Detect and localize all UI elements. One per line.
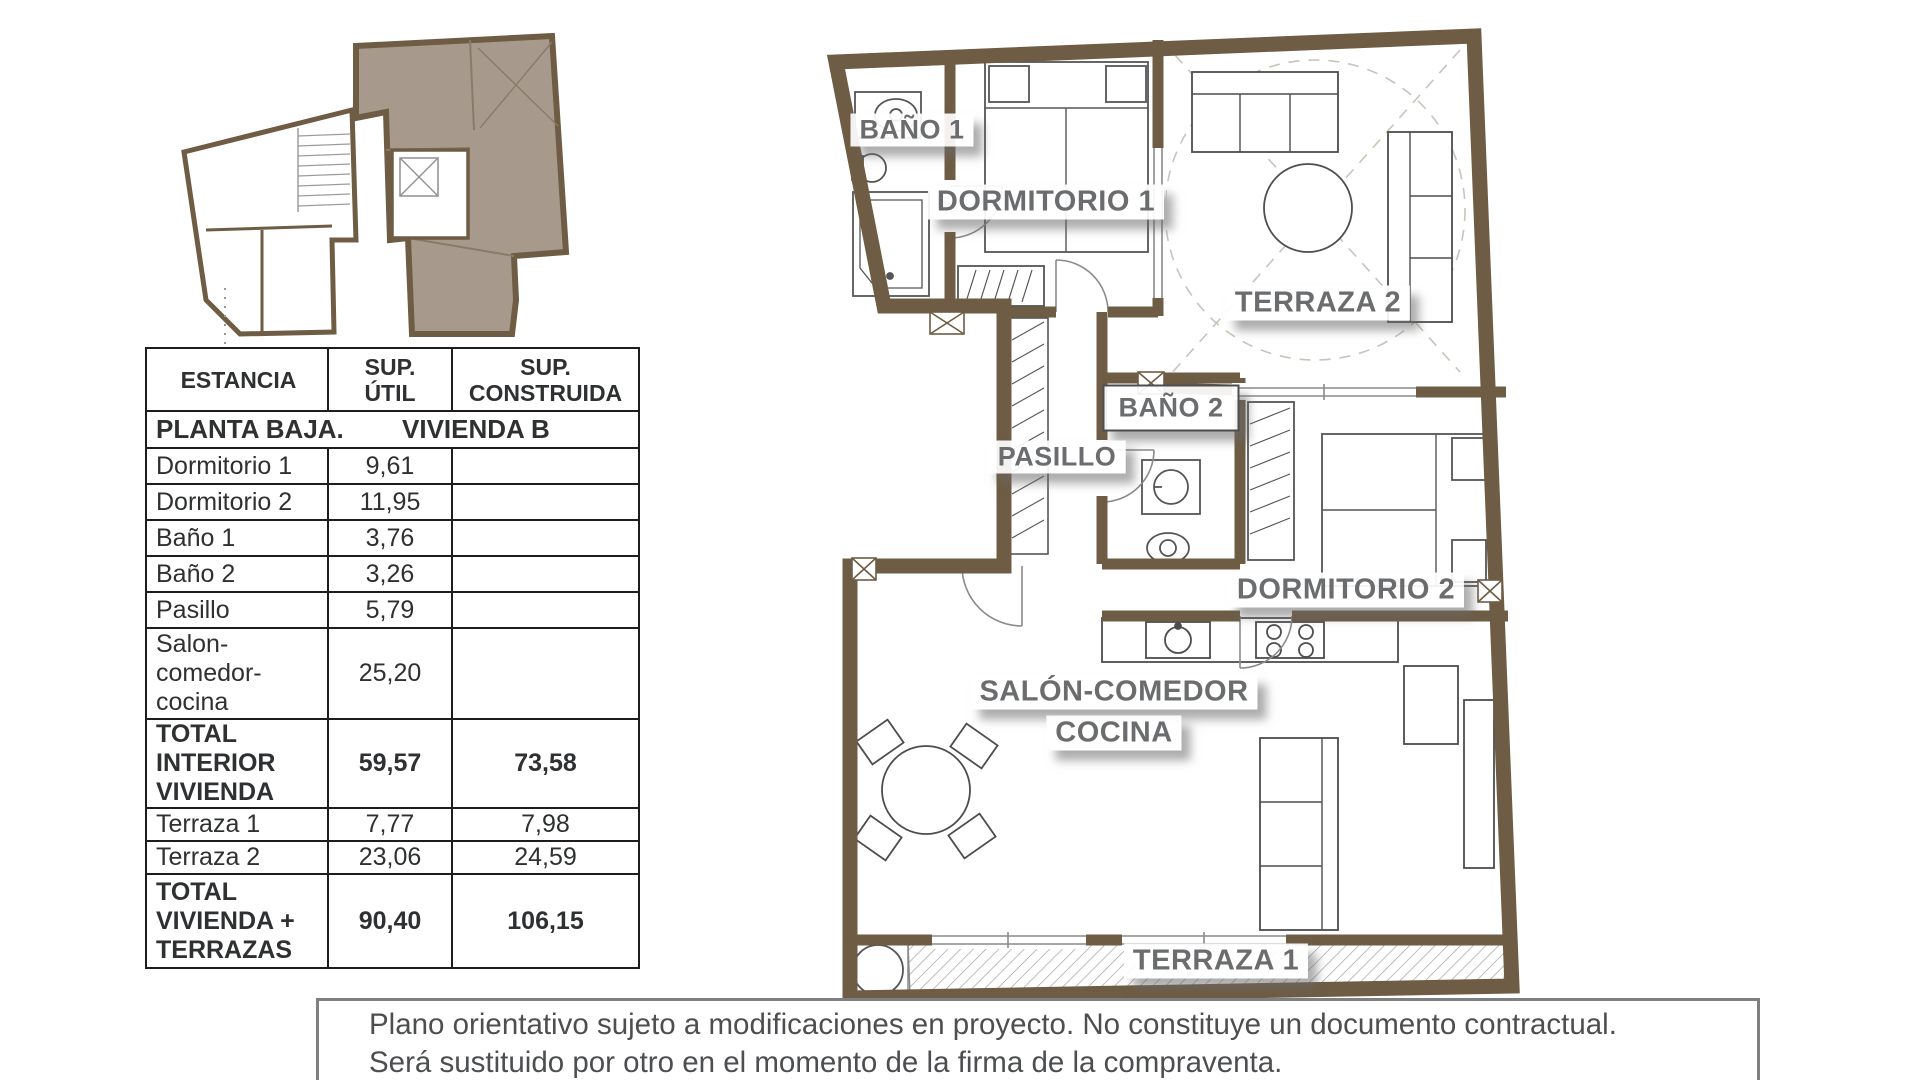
label-terraza2: TERRAZA 2 <box>1226 286 1410 321</box>
disclaimer-line: Será sustituido por otro en el momento d… <box>369 1044 1757 1080</box>
row-util: 7,77 <box>328 808 452 841</box>
main-plan <box>836 36 1512 998</box>
row-util: 3,76 <box>328 520 452 556</box>
row-label: Terraza 2 <box>146 841 328 874</box>
label-cocina: COCINA <box>1046 716 1181 751</box>
row-label: Baño 1 <box>146 520 328 556</box>
table-section-row: PLANTA BAJA. VIVIENDA B <box>146 411 639 448</box>
row-construida: 24,59 <box>452 841 639 874</box>
pasillo-closet <box>1010 318 1048 554</box>
row-construida <box>452 628 639 719</box>
table-total-vivienda-row: TOTAL VIVIENDA + TERRAZAS 90,40 106,15 <box>146 874 639 968</box>
header-sup-construida: SUP. CONSTRUIDA <box>452 348 639 411</box>
row-construida: 106,15 <box>452 874 639 968</box>
row-construida <box>452 556 639 592</box>
row-construida: 73,58 <box>452 719 639 808</box>
row-label: Terraza 1 <box>146 808 328 841</box>
area-table: ESTANCIA SUP. ÚTIL SUP. CONSTRUIDA PLANT… <box>145 347 640 969</box>
bano2-fixtures <box>1142 460 1200 563</box>
row-util: 11,95 <box>328 484 452 520</box>
dormitorio2-furniture <box>1248 402 1490 586</box>
key-plan <box>184 36 566 344</box>
row-construida <box>452 448 639 484</box>
label-bano1: BAÑO 1 <box>850 114 973 147</box>
label-terraza1: TERRAZA 1 <box>1124 944 1308 979</box>
row-label: Dormitorio 1 <box>146 448 328 484</box>
table-row: Baño 1 3,76 <box>146 520 639 556</box>
table-total-interior-row: TOTAL INTERIOR VIVIENDA 59,57 73,58 <box>146 719 639 808</box>
table-row: Salon- comedor- cocina 25,20 <box>146 628 639 719</box>
table-row: Dormitorio 2 11,95 <box>146 484 639 520</box>
label-dormitorio1: DORMITORIO 1 <box>928 185 1164 220</box>
key-plan-building <box>184 110 356 334</box>
label-bano2: BAÑO 2 <box>1102 385 1239 432</box>
row-label: Salon- comedor- cocina <box>146 628 328 719</box>
table-row: Terraza 1 7,77 7,98 <box>146 808 639 841</box>
row-construida <box>452 484 639 520</box>
label-salon-comedor: SALÓN-COMEDOR <box>970 675 1257 710</box>
section-vivienda: VIVIENDA B <box>402 412 550 447</box>
row-construida <box>452 592 639 628</box>
row-label: Baño 2 <box>146 556 328 592</box>
row-util: 25,20 <box>328 628 452 719</box>
row-util: 90,40 <box>328 874 452 968</box>
section-planta: PLANTA BAJA. <box>156 414 344 444</box>
row-util: 23,06 <box>328 841 452 874</box>
floorplan-sheet: BAÑO 1 DORMITORIO 1 TERRAZA 2 BAÑO 2 PAS… <box>0 0 1920 1080</box>
row-util: 5,79 <box>328 592 452 628</box>
row-util: 9,61 <box>328 448 452 484</box>
row-label: TOTAL VIVIENDA + TERRAZAS <box>146 874 328 968</box>
row-util: 3,26 <box>328 556 452 592</box>
table-row: Terraza 2 23,06 24,59 <box>146 841 639 874</box>
row-label: Pasillo <box>146 592 328 628</box>
table-header-row: ESTANCIA SUP. ÚTIL SUP. CONSTRUIDA <box>146 348 639 411</box>
row-label: TOTAL INTERIOR VIVIENDA <box>146 719 328 808</box>
row-construida <box>452 520 639 556</box>
table-row: Dormitorio 1 9,61 <box>146 448 639 484</box>
label-pasillo: PASILLO <box>989 441 1126 474</box>
header-sup-util: SUP. ÚTIL <box>328 348 452 411</box>
table-row: Baño 2 3,26 <box>146 556 639 592</box>
disclaimer-line: Plano orientativo sujeto a modificacione… <box>369 1006 1757 1044</box>
terraza2-furniture <box>1192 72 1452 322</box>
label-dormitorio2: DORMITORIO 2 <box>1228 573 1464 608</box>
row-construida: 7,98 <box>452 808 639 841</box>
header-estancia: ESTANCIA <box>146 348 328 411</box>
row-label: Dormitorio 2 <box>146 484 328 520</box>
row-util: 59,57 <box>328 719 452 808</box>
table-row: Pasillo 5,79 <box>146 592 639 628</box>
disclaimer-box: Plano orientativo sujeto a modificacione… <box>316 998 1760 1080</box>
